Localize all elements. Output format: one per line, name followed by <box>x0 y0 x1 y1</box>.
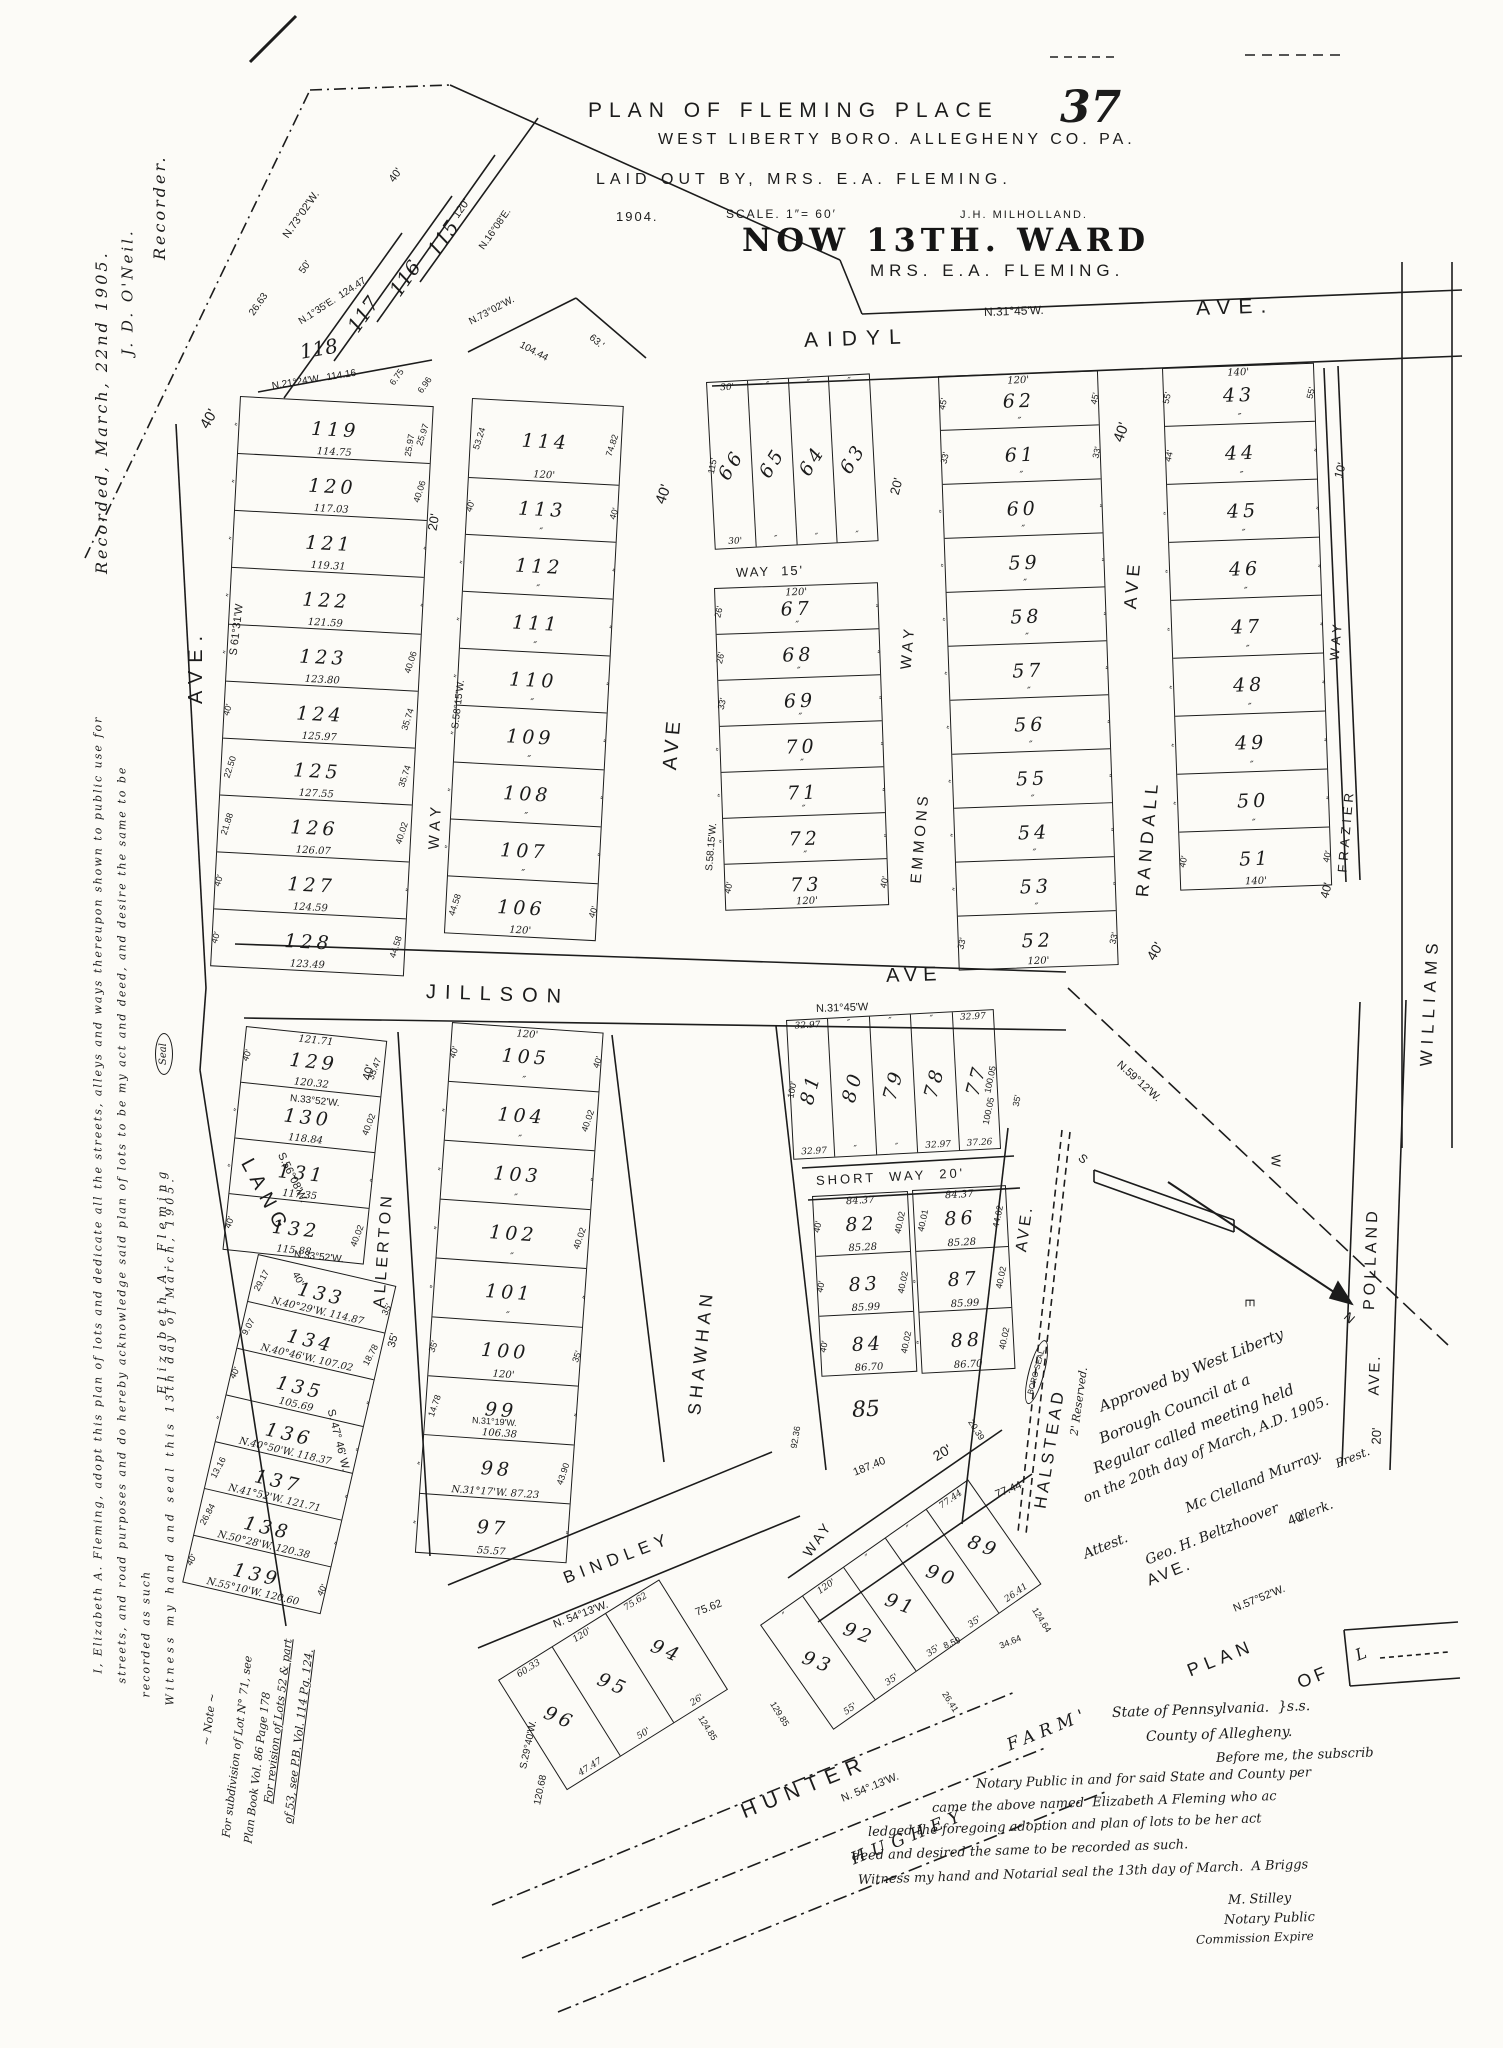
lot-length: ″ <box>524 811 528 822</box>
recorder-name: J. D. O'Neil. <box>121 228 136 355</box>
lot-110: ″110″″ <box>457 649 610 714</box>
lot-number: 83 <box>848 1272 881 1296</box>
aidyl-bend <box>840 260 862 314</box>
lot-length: 55.57 <box>476 1545 505 1558</box>
sliver-bottom <box>1094 1182 1234 1232</box>
lot-104: ″10440.02″ <box>445 1082 599 1151</box>
dedication-line-1: I, Elizabeth A. Fleming, adopt this plan… <box>93 716 104 1674</box>
lot-88: ″8840.0286.70 <box>919 1308 1014 1373</box>
lot-length: ″ <box>1252 818 1256 829</box>
lot-108: ″108″″ <box>451 763 604 828</box>
lot-side-dim: 40.06 <box>403 650 419 675</box>
scan-artifact-corner <box>250 16 296 62</box>
lot-48: ″48″″ <box>1173 654 1325 717</box>
lot-length: ″ <box>1250 760 1254 771</box>
lot-top-dim: ″ <box>781 1611 790 1621</box>
lot-124: 40'12435.74125.97 <box>223 682 418 749</box>
lot-side-dim: 40' <box>209 930 222 944</box>
lot-length: 86.70 <box>854 1362 883 1374</box>
owner-name: MRS. E.A. FLEMING. <box>870 262 1124 279</box>
lot-128: 40'12844.58123.49 <box>211 909 406 975</box>
lot-side-dim: 40' <box>814 1279 826 1293</box>
lot-top-dim: ″ <box>807 379 811 389</box>
lot114-top-e <box>576 298 646 358</box>
lot-top-dim: ″ <box>847 1019 851 1029</box>
lot-number: 97 <box>476 1516 510 1540</box>
aidyl-north <box>862 290 1462 314</box>
lot-49: ″49″″ <box>1175 712 1327 775</box>
street-polland-ave: AVE. <box>1367 1354 1383 1396</box>
lot-number: 108 <box>503 782 552 806</box>
compass-arrow-shaft <box>1168 1182 1352 1304</box>
lot-number: 80 <box>837 1068 867 1105</box>
lot-121: ″121″119.31 <box>232 511 427 578</box>
lot-length: 120' <box>1027 955 1049 967</box>
title-line-1: PLAN OF FLEMING PLACE <box>588 100 999 121</box>
title-line-3: LAID OUT BY, MRS. E.A. FLEMING. <box>596 172 1012 188</box>
lot-side-dim: 26' <box>712 605 724 619</box>
lot-side-dim: 40.02 <box>572 1226 589 1251</box>
lot-length: ″ <box>802 804 806 815</box>
lot-number: 112 <box>515 555 564 579</box>
lot-side-dim: 14.78 <box>426 1393 443 1418</box>
lot-number: 84 <box>851 1332 884 1356</box>
lot-length: ″ <box>509 1252 514 1263</box>
block-lots-67-73: 120'26'67″″26'68″″33'69″″″70″″″71″″″72″″… <box>714 582 889 911</box>
lot-top-dim: 30' <box>720 383 734 394</box>
lot-number: 107 <box>500 839 549 863</box>
lot-69: 33'69″″ <box>718 675 882 727</box>
lot-50: ″50″″ <box>1177 769 1329 832</box>
lot-number: 59 <box>1008 551 1041 574</box>
lot-length: ″ <box>1029 740 1033 751</box>
lot-number: 130 <box>283 1104 333 1131</box>
lot-side-dim: 74.82 <box>604 433 620 458</box>
lot-number: 56 <box>1014 713 1047 736</box>
lot-length: ″ <box>1019 470 1023 481</box>
plat-map-sheet: PLAN OF FLEMING PLACEWEST LIBERTY BORO. … <box>0 0 1503 2048</box>
lot-length: ″ <box>1242 528 1246 539</box>
block-lots-129-132: 121.7140'12935.47120.32″13040.02118.84″1… <box>222 1026 387 1265</box>
lot-number: 92 <box>840 1618 878 1650</box>
recorded-note: Recorded, March, 22nd 1905. <box>94 250 110 574</box>
lot-length: ″ <box>803 850 807 861</box>
polland-east <box>1390 1000 1406 1470</box>
street-emmons-way: WAY <box>899 625 918 671</box>
lot-length: 121.59 <box>307 617 343 630</box>
lot-side-dim: 40.01 <box>916 1208 930 1232</box>
block-top-dim: 120' <box>1007 375 1029 387</box>
lot-number: 70 <box>785 735 818 758</box>
lot-73: 40'7340'120' <box>725 859 888 910</box>
lot-number: 78 <box>920 1064 950 1101</box>
lot-number: 100 <box>480 1339 530 1364</box>
lot-length: 123.80 <box>304 674 340 687</box>
lot-45: ″45″″ <box>1167 480 1319 543</box>
lot-length: 126.07 <box>296 845 332 858</box>
lot-length: ″ <box>1023 578 1027 589</box>
lot-number: 57 <box>1012 659 1045 682</box>
lot-47: ″47″″ <box>1171 596 1323 659</box>
lot-44: 44'44″″ <box>1165 422 1317 485</box>
lot-number: 128 <box>284 930 333 954</box>
street-frazier-way: WAY <box>1328 620 1344 661</box>
lot-114: 53.2411474.82120' <box>469 399 623 486</box>
lot-number: 64 <box>795 441 831 480</box>
lot-side-dim: 22.50 <box>222 755 238 780</box>
recorder-title: Recorder. <box>152 155 168 260</box>
lot-54: ″54″″ <box>954 803 1114 862</box>
lot-number: 44 <box>1225 441 1258 464</box>
lot-side-dim: 35' <box>427 1339 440 1353</box>
lot-85: 85 <box>851 1399 880 1422</box>
block-lots-43-51: 140'55'4355'″44'44″″″45″″″46″″″47″″″48″″… <box>1162 363 1332 891</box>
lot-number: 45 <box>1227 499 1260 522</box>
lot-bottom-dim: ″ <box>854 1144 858 1154</box>
lot-59: ″59″″ <box>945 533 1105 592</box>
lot-length: ″ <box>1033 848 1037 859</box>
lot-side-dim: 43.90 <box>555 1462 572 1487</box>
lot-70: ″70″″ <box>720 721 884 773</box>
lot-length: ″ <box>518 1134 523 1145</box>
lot-80: ″80″ <box>828 1017 877 1157</box>
lot-61: 33'6133'″ <box>941 425 1101 484</box>
bearing-jillson: N.31°45'W <box>816 1002 869 1015</box>
lot-127: 40'127″124.59 <box>214 852 409 919</box>
lot-length: 140' <box>1245 876 1267 888</box>
lot-bottom-dim: 30' <box>728 536 742 547</box>
lot-length: ″ <box>797 666 801 677</box>
street-jillson-ave: AVE <box>886 964 943 986</box>
lot-side-dim: 45' <box>937 397 949 411</box>
block-lots-119-128: ″11925.97114.75″12040.06117.03″121″119.3… <box>210 396 434 976</box>
lot-side-dim: 33' <box>955 936 967 950</box>
lot-side-dim: 35.47 <box>366 1056 383 1081</box>
lot-63: ″63″ <box>829 374 877 542</box>
lot-side-dim: 40.02 <box>580 1108 597 1133</box>
lot-length: ″ <box>527 754 531 765</box>
short-way-north <box>802 1156 1014 1168</box>
lot-83: 40'8340.0285.99 <box>816 1252 913 1317</box>
lot-length: ″ <box>521 868 525 879</box>
lot-number: 46 <box>1229 557 1262 580</box>
lot-81: 32.978132.97100' <box>787 1019 836 1159</box>
lot-length: 123.49 <box>290 958 326 971</box>
street-way-west: WAY <box>427 802 444 850</box>
block-lots-52-62: 120'45'6245'″33'6133'″″60″″″59″″″58″″″57… <box>938 370 1119 970</box>
lot-number: 123 <box>299 645 348 669</box>
street-aidyl-ave: AVE. <box>1196 295 1275 319</box>
ave-west-bend <box>200 988 206 1070</box>
lot-number: 65 <box>754 443 790 482</box>
boundary-top <box>310 85 450 90</box>
lot-bottom-dim: ″ <box>815 532 819 542</box>
lot-top-dim: ″ <box>847 376 851 386</box>
lot-58: ″58″″ <box>947 587 1107 646</box>
title-line-2: WEST LIBERTY BORO. ALLEGHENY CO. PA. <box>658 132 1136 148</box>
block-top-dim: 120' <box>785 587 807 599</box>
lot-number: 52 <box>1021 929 1054 952</box>
lot-111: ″111″″ <box>460 592 613 657</box>
lot-length: ″ <box>522 1075 527 1086</box>
lot-length: ″ <box>1240 470 1244 481</box>
lot-side-dim: 21.88 <box>219 812 235 837</box>
lot-60: ″60″″ <box>943 479 1103 538</box>
lot-length: ″ <box>530 697 534 708</box>
lot-length: ″ <box>536 584 540 595</box>
lot-97: ″97″55.57 <box>416 1494 570 1562</box>
page-number: 37 <box>1060 86 1121 130</box>
title-year: 1904. <box>616 210 659 223</box>
lot-number: 120 <box>308 475 357 499</box>
lot-side-dim: 40.02 <box>893 1210 907 1234</box>
lot-side-dim: 25.97 <box>415 422 431 447</box>
lot-79: ″79″ <box>870 1014 919 1154</box>
lot-side-dim: 18.78 <box>361 1342 380 1367</box>
lot-107: ″107″″ <box>448 819 601 884</box>
signature: Elizabeth A. Fleming <box>156 1167 168 1394</box>
lot-side-dim: 13.16 <box>209 1455 228 1480</box>
lot-number: 119 <box>311 418 360 442</box>
lot-length: ″ <box>1027 686 1031 697</box>
lot-120: ″12040.06117.03 <box>235 454 430 521</box>
lot-number: 86 <box>944 1207 977 1231</box>
block-lots-86-88: 84.3740.018644.0285.28″8740.0285.99″8840… <box>912 1185 1016 1374</box>
plan-box-dash <box>1380 1652 1448 1658</box>
lot-side-dim: 53.24 <box>471 426 487 451</box>
lot-side-dim: 40' <box>811 1219 823 1233</box>
lot-113: 40'11340'″ <box>466 478 619 543</box>
lot-number: 109 <box>506 725 555 749</box>
lot-side-dim: 40' <box>447 1045 460 1059</box>
lot-103: ″103″″ <box>441 1141 595 1210</box>
lot-side-dim: 40.02 <box>349 1223 366 1248</box>
lot-number: 53 <box>1019 875 1052 898</box>
street-width-polland: 20' <box>1370 1427 1384 1444</box>
lot-102: ″10240.02″ <box>436 1200 590 1269</box>
lot-number: 124 <box>296 702 345 726</box>
lot-length: ″ <box>1244 586 1248 597</box>
lot-number: 61 <box>1004 443 1037 466</box>
lot-number: 104 <box>497 1103 547 1128</box>
lot-side-dim: 40' <box>221 703 234 717</box>
lot-126: 21.8812640.02126.07 <box>217 796 412 863</box>
lot-number: 89 <box>965 1531 1003 1563</box>
lot-length: ″ <box>799 712 803 723</box>
lot-number: 126 <box>290 816 339 840</box>
lot-122: ″122″121.59 <box>229 568 424 635</box>
lot-number: 68 <box>782 643 815 666</box>
lot-side-dim: 33' <box>939 450 951 464</box>
lot-side-dim: 40.02 <box>394 821 410 846</box>
lot-46: ″46″″ <box>1169 538 1321 601</box>
lot-72: ″72″″ <box>723 813 887 865</box>
lot-side-dim: 35.74 <box>397 764 413 789</box>
title-scale: SCALE. 1″= 60′ <box>726 208 837 220</box>
lot-side-dim: 40.02 <box>899 1330 913 1354</box>
lot-98: ″9843.90N.31°17'W. 87.23 <box>420 1435 574 1504</box>
lot-number: 50 <box>1237 789 1270 812</box>
lot-number: 79 <box>879 1066 909 1103</box>
lot-length: 125.97 <box>301 731 337 744</box>
lot-bottom-dim: 37.26 <box>966 1137 992 1148</box>
lot-bottom-dim: ″ <box>855 530 859 540</box>
lot-side-dim: 55' <box>1161 391 1173 405</box>
street-aidyl: AIDYL <box>804 326 910 351</box>
lot-length: ″ <box>1021 524 1025 535</box>
lot-side-dim: 40' <box>212 873 225 887</box>
lot-78: ″7832.97 <box>911 1012 960 1152</box>
lot-number: 87 <box>947 1268 980 1292</box>
lot-side-dim: 40.02 <box>994 1265 1008 1289</box>
lot-number: 102 <box>489 1221 539 1246</box>
lot-number: 111 <box>512 611 561 635</box>
lot-bottom-dim: 32.97 <box>925 1140 951 1151</box>
lot-number: 91 <box>882 1589 920 1621</box>
lot-side-dim: 29.17 <box>252 1268 271 1293</box>
lot-number: 54 <box>1018 821 1051 844</box>
lot-length: ″ <box>1248 702 1252 713</box>
lot-number: 131 <box>277 1160 327 1187</box>
lot-length: ″ <box>800 758 804 769</box>
lot-number: 122 <box>302 589 351 613</box>
lot-125: 22.5012535.74127.55 <box>220 739 415 806</box>
lot-length: 85.99 <box>950 1298 979 1310</box>
lot-51: 40'5140'140' <box>1179 827 1331 889</box>
lot-55: ″55″″ <box>952 749 1112 808</box>
lot-top-dim: ″ <box>930 1014 934 1024</box>
lot-side-dim: 9.07 <box>240 1316 257 1336</box>
lot-number: 127 <box>287 873 336 897</box>
lot-number: 63 <box>835 439 871 478</box>
dedication-line-3: recorded as such <box>141 1570 152 1698</box>
lot-number: 82 <box>845 1212 878 1236</box>
lot-side-dim: 26' <box>714 650 726 664</box>
lot-length: 114.75 <box>316 446 352 459</box>
lot-57: ″57″″ <box>948 641 1108 700</box>
lot-number: 90 <box>923 1560 961 1592</box>
lot-side-dim: 44.02 <box>991 1204 1005 1228</box>
lot-84: 40'8440.0286.70 <box>819 1312 916 1376</box>
plan-box-bottom <box>1350 1678 1460 1686</box>
lot-number: 60 <box>1006 497 1039 520</box>
lot-87: ″8740.0285.99 <box>916 1247 1011 1313</box>
lot-106: 44.5810640'120' <box>445 876 598 940</box>
diagonal-n5912w <box>1068 988 1448 1345</box>
lot-side-dim: 40' <box>722 880 734 894</box>
lot-number: 81 <box>796 1070 826 1107</box>
lot-length: ″ <box>533 641 537 652</box>
strip-lots-77-81: 32.978132.97100'″80″″79″″7832.9732.97773… <box>786 1009 1001 1160</box>
lot-100: 35'10035'120' <box>428 1317 582 1386</box>
lot-side-dim: 40.02 <box>997 1326 1011 1350</box>
lot-length: ″ <box>1025 632 1029 643</box>
lot-number: 105 <box>501 1045 551 1070</box>
lot-length: 85.28 <box>848 1242 877 1254</box>
lot-length: 85.28 <box>947 1237 976 1249</box>
ave-west-edge <box>176 424 206 988</box>
street-randall-ave: AVE <box>1121 559 1143 610</box>
lot-side-dim: 40' <box>464 499 477 513</box>
lot-number: 43 <box>1223 383 1256 406</box>
lot-side-dim: 26.84 <box>198 1502 217 1527</box>
lot-length: 85.99 <box>851 1302 880 1314</box>
lot-number: 98 <box>480 1457 514 1481</box>
lot-number: 132 <box>271 1215 321 1242</box>
lot-101: ″101″″ <box>432 1258 586 1327</box>
lot-number: 55 <box>1016 767 1049 790</box>
lot-number: 66 <box>713 445 749 484</box>
lot-top-dim: 32.97 <box>960 1012 986 1023</box>
lot-number: 103 <box>493 1162 543 1187</box>
lot-bottom-dim: ″ <box>895 1142 899 1152</box>
lot-number: 93 <box>799 1647 837 1679</box>
lot-109: ″109″″ <box>454 706 607 771</box>
street-way-15: WAY 15' <box>736 564 805 579</box>
lot-length: ″ <box>1018 416 1022 427</box>
lot-length: 119.31 <box>310 560 346 573</box>
lot-number: 62 <box>1002 389 1035 412</box>
lot-length: ″ <box>1246 644 1250 655</box>
lot-number: 121 <box>305 532 354 556</box>
boundary-lines-layer <box>0 0 1503 2048</box>
compass-w: W <box>1270 1155 1283 1167</box>
lot-side-dim: 40.06 <box>412 479 428 504</box>
lot-52: 33'5233'120' <box>958 911 1118 969</box>
lot-number: 72 <box>788 827 821 850</box>
lot-number: 71 <box>787 781 820 804</box>
lot-number: 125 <box>293 759 342 783</box>
block-top-dim: 120' <box>516 1029 539 1041</box>
notary-name: M. Stilley <box>1228 1892 1292 1907</box>
surveyor-name: J.H. MILHOLLAND. <box>960 210 1088 221</box>
lot-side-dim: 35.74 <box>400 707 416 732</box>
lot-number: 58 <box>1010 605 1043 628</box>
lot-number: 49 <box>1235 731 1268 754</box>
lot-length: ″ <box>795 620 799 631</box>
lot-bottom-dim: 32.97 <box>801 1146 827 1157</box>
lot-number: 51 <box>1239 847 1272 870</box>
lot-side-dim: 40.02 <box>360 1112 377 1137</box>
lot-119: ″11925.97114.75 <box>238 397 433 464</box>
plan-box-top <box>1344 1622 1458 1630</box>
lot-number: 48 <box>1233 673 1266 696</box>
lot-length: ″ <box>1031 794 1035 805</box>
lot-length: 120' <box>492 1369 515 1381</box>
lot-number: 101 <box>484 1280 534 1305</box>
lot-side-dim: 33' <box>716 696 728 710</box>
lot-number: 106 <box>497 896 546 920</box>
lot-number: 99 <box>484 1398 518 1422</box>
lot-length: 124.59 <box>293 901 329 914</box>
block-top-dim: 84.37 <box>846 1195 875 1207</box>
lot-length: 120' <box>509 925 531 937</box>
lot-top-dim: 32.97 <box>794 1020 820 1031</box>
polland-west <box>1342 1002 1360 1466</box>
lot-number: 95 <box>594 1668 632 1701</box>
dedication-line-2: streets, and road purposes and do hereby… <box>117 766 128 1684</box>
lot-length: ″ <box>514 1193 519 1204</box>
lot-number: 94 <box>647 1635 685 1668</box>
compass-e: E <box>1244 1299 1257 1308</box>
lot-length: ″ <box>539 527 543 538</box>
lot-68: 26'68″″ <box>717 629 881 681</box>
lot-53: ″53″″ <box>956 857 1116 916</box>
street-width-frazier: 10' <box>1332 461 1348 479</box>
lot-top-dim: ″ <box>864 1553 873 1563</box>
lot-length: 115.88 <box>276 1243 312 1258</box>
lot-length: 117.03 <box>313 503 349 516</box>
